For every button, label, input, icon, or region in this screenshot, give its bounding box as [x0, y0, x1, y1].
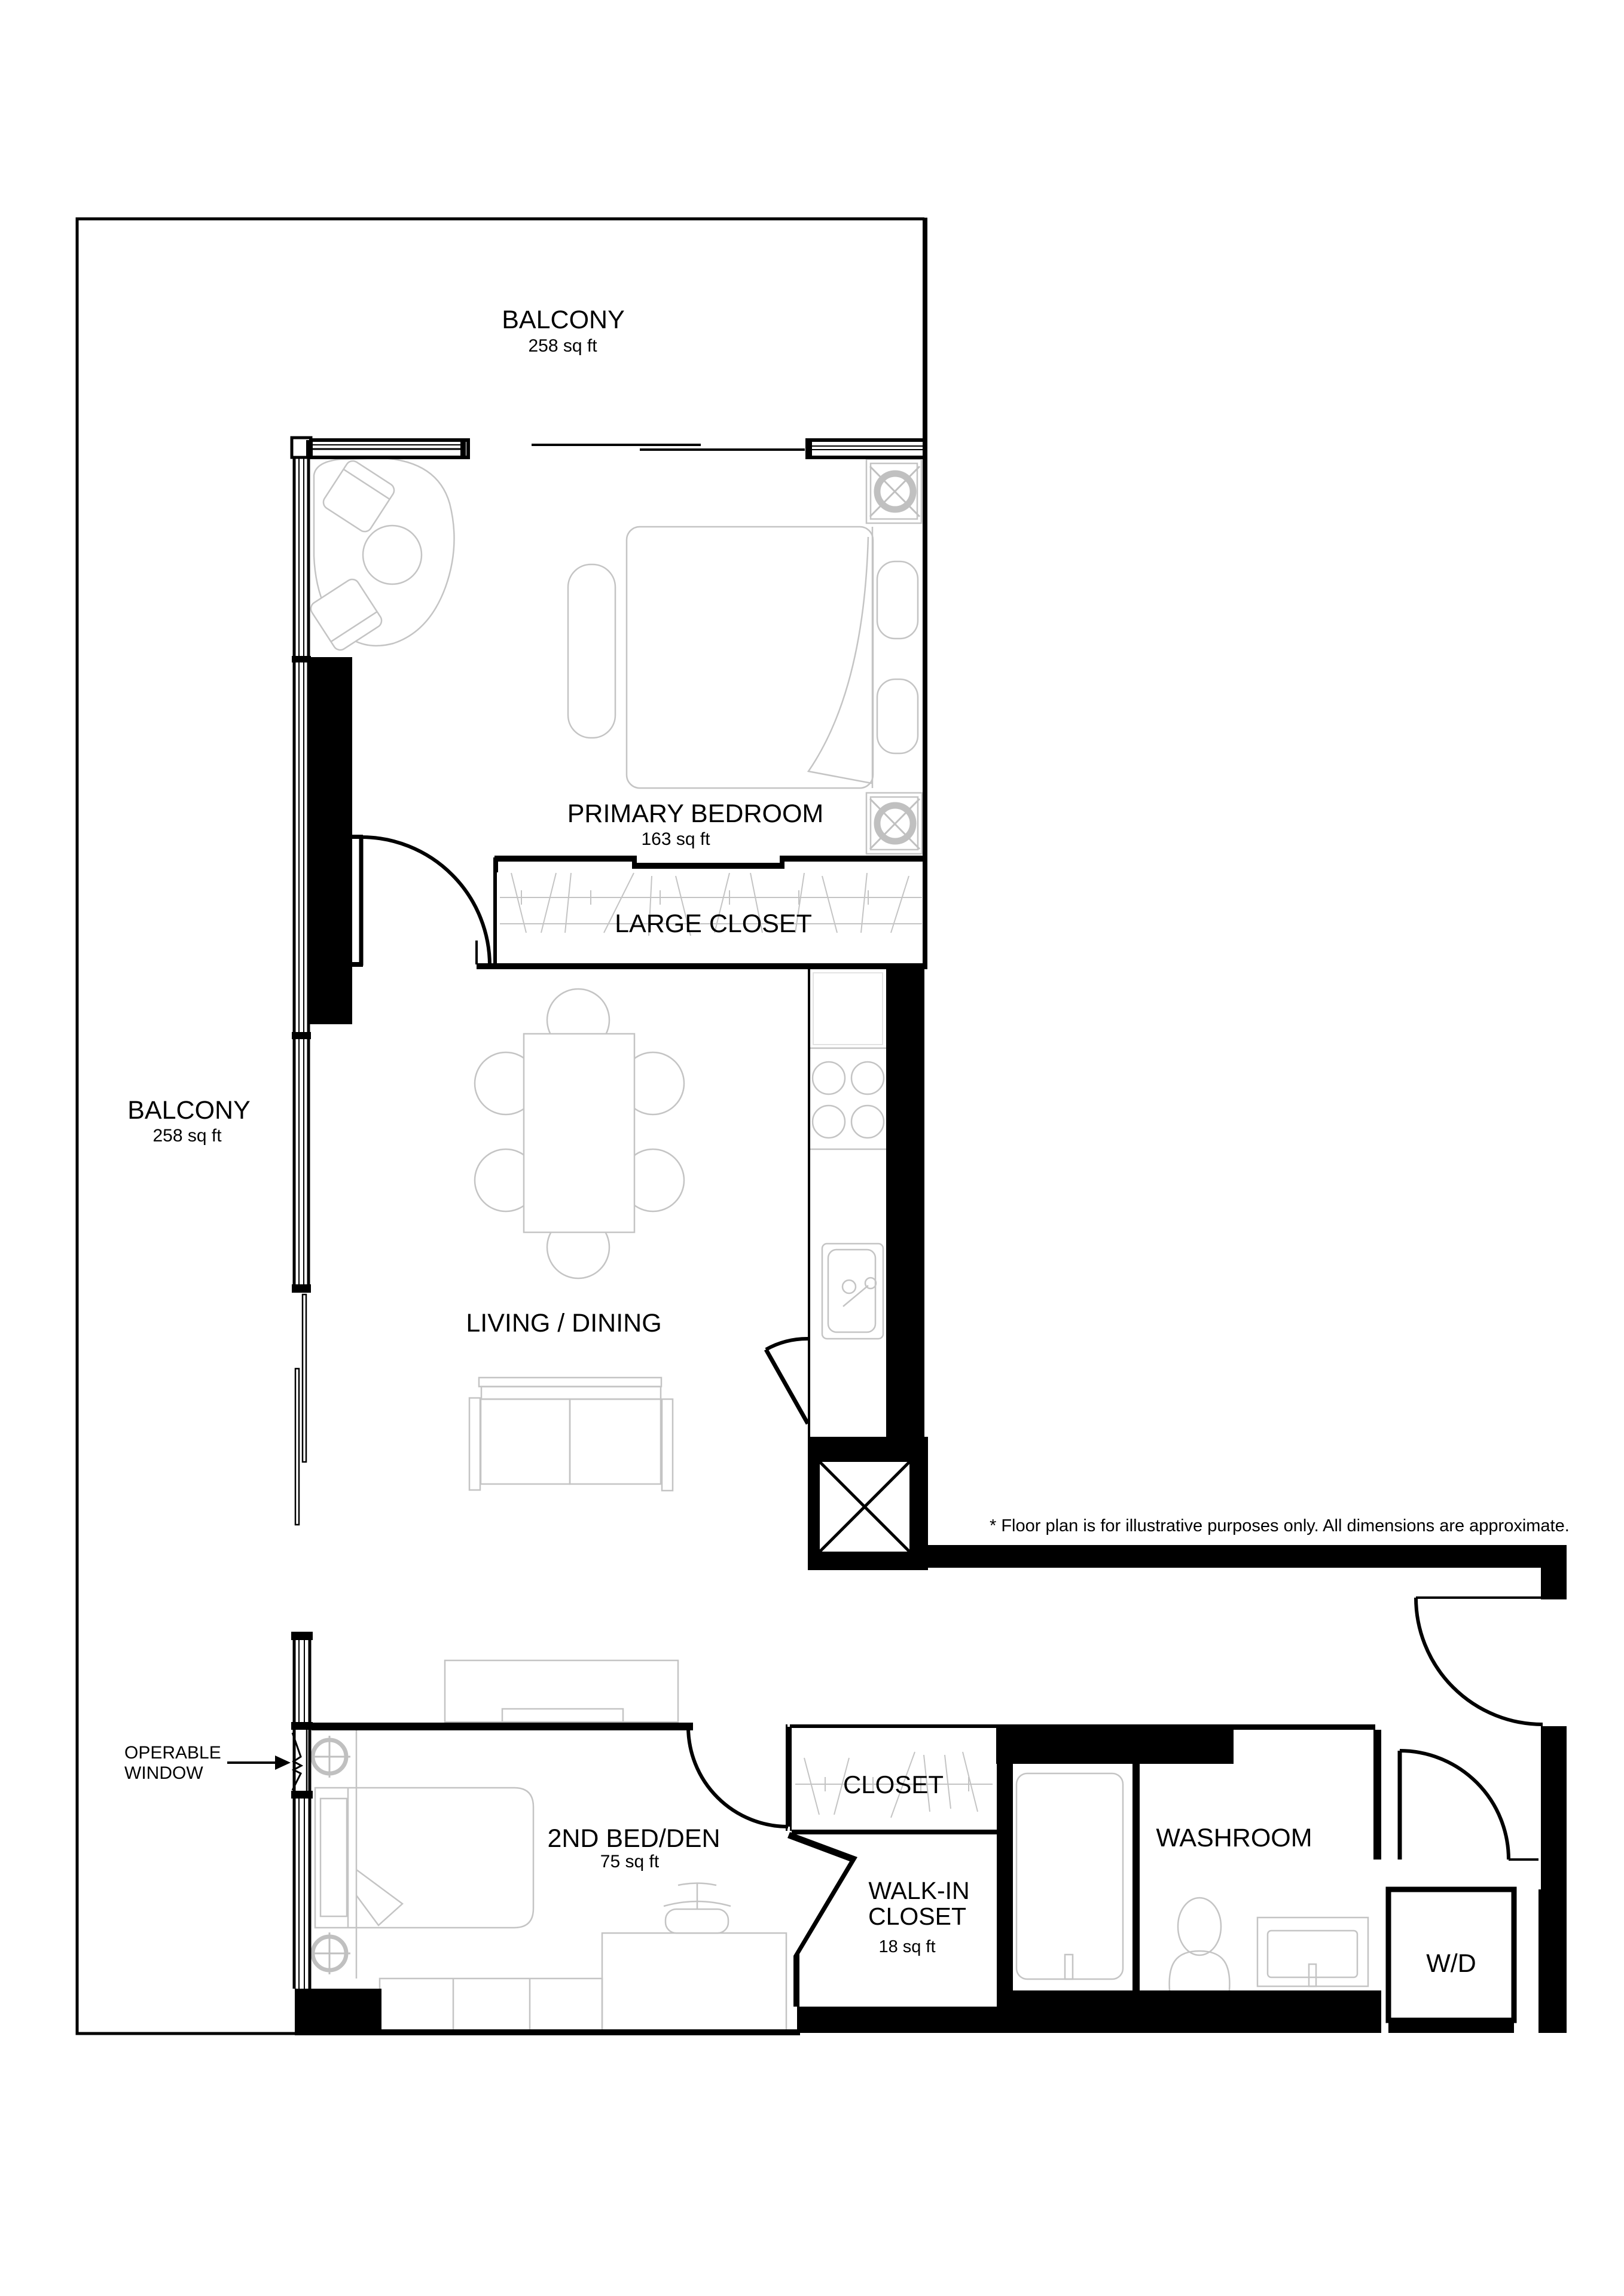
svg-text:WINDOW: WINDOW [124, 1763, 203, 1783]
svg-text:W/D: W/D [1426, 1949, 1476, 1978]
svg-text:CLOSET: CLOSET [868, 1903, 966, 1930]
svg-text:LARGE CLOSET: LARGE CLOSET [615, 909, 812, 938]
svg-text:75 sq ft: 75 sq ft [600, 1852, 660, 1871]
svg-text:* Floor plan is for illustrati: * Floor plan is for illustrative purpose… [990, 1516, 1570, 1535]
svg-text:258 sq ft: 258 sq ft [152, 1126, 222, 1146]
svg-text:163 sq ft: 163 sq ft [641, 829, 710, 849]
svg-text:2ND BED/DEN: 2ND BED/DEN [547, 1824, 720, 1853]
svg-text:CLOSET: CLOSET [843, 1770, 944, 1799]
svg-text:PRIMARY BEDROOM: PRIMARY BEDROOM [567, 799, 824, 828]
svg-text:18 sq ft: 18 sq ft [878, 1937, 935, 1956]
svg-text:BALCONY: BALCONY [127, 1096, 251, 1125]
svg-text:BALCONY: BALCONY [502, 306, 625, 334]
svg-text:LIVING / DINING: LIVING / DINING [466, 1309, 661, 1338]
svg-text:OPERABLE: OPERABLE [124, 1743, 221, 1763]
svg-text:WALK-IN: WALK-IN [868, 1877, 969, 1904]
svg-text:258 sq ft: 258 sq ft [528, 336, 597, 356]
svg-text:WASHROOM: WASHROOM [1156, 1824, 1312, 1852]
